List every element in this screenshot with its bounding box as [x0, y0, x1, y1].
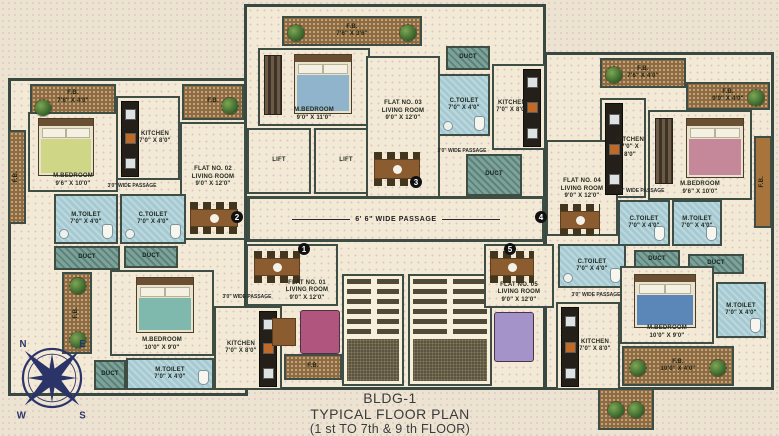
basin-fixture	[59, 229, 69, 239]
room-label: C.TOILET7'0" X 4'0"	[137, 212, 168, 227]
room-label: KITCHEN7'0" X 8'0"	[496, 100, 527, 115]
main-passage: 6' 6" WIDE PASSAGE	[247, 196, 545, 242]
floor-plan: F.B.7'6" X 4'0" F.B. F.B. M.BEDROOM9'6" …	[0, 0, 779, 436]
room-label: M.BEDROOM10'0" X 9'0"	[112, 337, 212, 352]
flat-label: FLAT NO. 05LIVING ROOM9'0" X 12'0"	[486, 282, 552, 305]
flat-3-marker: 3	[410, 176, 422, 188]
plant-icon	[628, 402, 644, 418]
room-label: KITCHEN7'0" X 8'0"	[616, 137, 644, 160]
room-label: KITCHEN7'0" X 8'0"	[579, 339, 610, 354]
kitchen-flat5: KITCHEN7'0" X 8'0"	[556, 302, 620, 390]
plant-icon	[222, 98, 238, 114]
dining-table	[254, 251, 300, 283]
master-bedroom-top: M.BEDROOM9'0" X 11'0"	[258, 48, 370, 126]
compass-rose: N E S W	[8, 334, 96, 422]
living-room-flat3: FLAT NO. 03LIVING ROOM9'0" X 12'0"	[366, 56, 440, 200]
flower-bed-top-right-1: F.B.7'6" X 4'0"	[600, 58, 686, 88]
master-bedroom-flat2: M.BEDROOM9'6" X 10'0"	[28, 112, 118, 192]
duct: DUCT	[446, 46, 490, 70]
kitchen-flat2: KITCHEN7'0" X 8'0"	[116, 96, 180, 180]
kitchen-counter	[561, 307, 579, 387]
passage-label: 3'0" WIDE PASSAGE	[604, 188, 676, 194]
duct: DUCT	[94, 360, 126, 390]
toilet-fixture	[198, 370, 209, 385]
compass-n: N	[19, 339, 26, 350]
stair-stringer	[447, 279, 453, 335]
duct: DUCT	[124, 246, 178, 268]
toilet-fixture	[474, 116, 485, 131]
master-bedroom-flat1: M.BEDROOM10'0" X 9'0"	[110, 270, 214, 356]
flower-bed-right-edge: F.B.	[754, 136, 772, 228]
flat-5-marker: 5	[504, 243, 516, 255]
room-label: M.TOILET7'0" X 4'0"	[681, 216, 712, 231]
staircase-left	[342, 274, 404, 386]
master-toilet-flat2: M.TOILET7'0" X 4'0"	[54, 194, 118, 244]
room-label: F.B.	[13, 171, 21, 182]
sink-icon	[609, 114, 620, 125]
flower-bed-bottom-center: F.B.	[284, 354, 342, 380]
sink-icon	[527, 77, 538, 88]
room-label: C.TOILET7'0" X 4'0"	[448, 98, 479, 113]
master-toilet-flat4: M.TOILET7'0" X 4'0"	[672, 200, 722, 246]
wardrobe	[264, 55, 282, 115]
stair-landing	[347, 339, 399, 381]
basin-fixture	[125, 229, 135, 239]
flower-bed-top-right-2: F.B.9'0" X 4'0"	[686, 82, 770, 110]
stair-landing	[413, 339, 487, 381]
plant-icon	[400, 25, 416, 41]
coffee-table	[272, 318, 296, 346]
bed	[686, 118, 744, 178]
room-label: KITCHEN7'0" X 8'0"	[225, 341, 256, 356]
living-room-flat5: FLAT NO. 05LIVING ROOM9'0" X 12'0"	[484, 244, 554, 308]
common-toilet-flat3: C.TOILET7'0" X 4'0"	[438, 74, 490, 136]
fridge-icon	[125, 158, 136, 169]
room-label: F.B.10'0" X 4'0"	[661, 359, 696, 374]
master-toilet-flat5: M.TOILET7'0" X 4'0"	[716, 282, 766, 338]
plan-title: BLDG-1 TYPICAL FLOOR PLAN (1 st TO 7th &…	[268, 390, 512, 436]
toilet-fixture	[170, 224, 181, 239]
passage-label: 3'0" WIDE PASSAGE	[424, 148, 500, 154]
plant-icon	[630, 360, 646, 376]
sink-icon	[565, 316, 576, 327]
master-bedroom-flat4: M.BEDROOM9'6" X 10'0"	[648, 110, 752, 200]
room-label: M.TOILET7'0" X 4'0"	[725, 303, 756, 318]
toilet-fixture	[102, 224, 113, 239]
flat-label: FLAT NO. 03LIVING ROOM9'0" X 12'0"	[368, 100, 438, 123]
flat-2-marker: 2	[231, 211, 243, 223]
bed	[38, 118, 94, 176]
plant-icon	[748, 90, 764, 106]
flat-1-marker: 1	[298, 243, 310, 255]
room-label: KITCHEN7'0" X 8'0"	[139, 131, 170, 146]
compass-e: E	[79, 339, 86, 350]
flower-bed-far-bottom-right	[598, 388, 654, 430]
building-name: BLDG-1	[268, 390, 512, 406]
dining-table	[560, 204, 600, 236]
room-label: F.B.7'6" X 4'0"	[32, 90, 114, 105]
common-toilet-flat2: C.TOILET7'0" X 4'0"	[120, 194, 186, 244]
kitchen-counter	[121, 101, 139, 177]
flat-label: FLAT NO. 01LIVING ROOM9'0" X 12'0"	[278, 280, 336, 303]
passage-label: 3'0" WIDE PASSAGE	[84, 183, 180, 189]
flower-bed-left-edge: F.B.	[8, 130, 26, 224]
plant-icon	[606, 67, 622, 83]
flat-label: FLAT NO. 02LIVING ROOM9'0" X 12'0"	[182, 166, 244, 189]
dash-line	[442, 219, 500, 220]
staircase-right	[408, 274, 492, 386]
room-label: F.B.	[307, 363, 318, 371]
floor-range: (1 st TO 7th & 9 th FLOOR)	[268, 422, 512, 436]
room-label: F.B.7'6" X 3'6"	[336, 24, 367, 39]
plan-type: TYPICAL FLOOR PLAN	[268, 406, 512, 422]
room-label: M.BEDROOM9'0" X 11'0"	[260, 107, 368, 122]
duct: DUCT	[466, 154, 522, 196]
master-toilet-flat1: M.TOILET7'0" X 4'0"	[126, 358, 214, 390]
room-label: F.B.	[759, 176, 767, 187]
room-label: M.BEDROOM10'0" X 9'0"	[622, 325, 712, 340]
plant-icon	[608, 402, 624, 418]
stove-icon	[125, 133, 136, 144]
compass-s: S	[79, 410, 86, 421]
flower-bed-bottom-right: F.B.10'0" X 4'0"	[622, 346, 734, 386]
passage-label: 6' 6" WIDE PASSAGE	[355, 216, 436, 223]
room-label: F.B.	[73, 307, 81, 318]
fridge-icon	[565, 368, 576, 379]
flower-bed-top-left-2: F.B.	[182, 84, 244, 120]
fridge-icon	[527, 128, 538, 139]
room-label: F.B.	[207, 98, 218, 106]
common-toilet-flat4: C.TOILET7'0" X 4'0"	[618, 200, 670, 246]
lift-left: LIFT	[247, 128, 311, 194]
fridge-icon	[263, 368, 274, 379]
stove-icon	[565, 342, 576, 353]
sofa	[494, 312, 534, 362]
plant-icon	[710, 360, 726, 376]
flat-4-marker: 4	[535, 211, 547, 223]
common-toilet-flat5: C.TOILET7'0" X 4'0"	[558, 244, 626, 288]
bed	[634, 274, 696, 328]
dash-line	[292, 219, 350, 220]
room-label: C.TOILET7'0" X 4'0"	[628, 216, 659, 231]
kitchen-flat3: KITCHEN7'0" X 8'0"	[492, 64, 546, 150]
sink-icon	[125, 109, 136, 120]
passage-label: 3'0" WIDE PASSAGE	[214, 294, 280, 300]
compass-w: W	[17, 410, 27, 421]
room-label: F.B.9'0" X 4'0"	[712, 89, 743, 104]
passage-label: 3'0" WIDE PASSAGE	[560, 292, 632, 298]
room-label: M.TOILET7'0" X 4'0"	[154, 367, 185, 382]
dining-table	[490, 251, 534, 283]
master-bedroom-flat5: M.BEDROOM10'0" X 9'0"	[620, 266, 714, 344]
room-label: C.TOILET7'0" X 4'0"	[576, 259, 607, 274]
bed	[294, 54, 352, 114]
plant-icon	[288, 25, 304, 41]
wardrobe	[655, 118, 673, 184]
stove-icon	[527, 102, 538, 113]
stair-stringer	[371, 279, 377, 335]
room-label: F.B.7'6" X 4'0"	[627, 66, 658, 81]
duct: DUCT	[54, 246, 120, 270]
toilet-fixture	[750, 318, 761, 333]
basin-fixture	[443, 121, 453, 131]
room-label: M.TOILET7'0" X 4'0"	[70, 212, 101, 227]
bed	[136, 277, 194, 333]
basin-fixture	[563, 273, 573, 283]
sofa	[300, 310, 340, 354]
plant-icon	[70, 278, 86, 294]
flower-bed-top-center: F.B.7'6" X 3'6"	[282, 16, 422, 46]
